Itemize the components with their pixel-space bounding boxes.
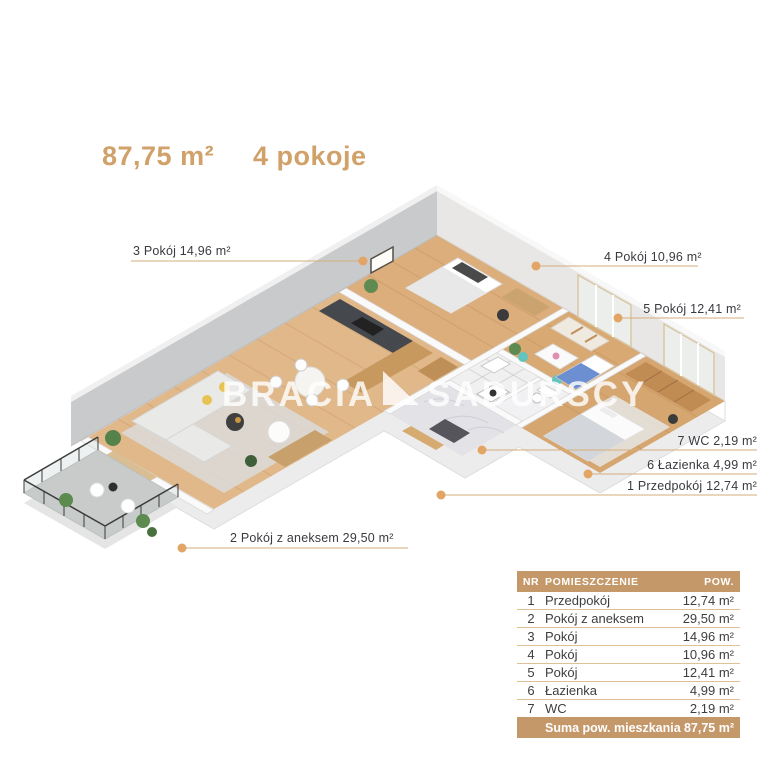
plant (245, 455, 257, 467)
plant (509, 343, 521, 355)
brand-watermark: BRACIA SADURSCY (222, 371, 647, 414)
table-row: 1 Przedpokój 12,74 m² (517, 592, 740, 610)
row-area: 12,41 m² (664, 665, 740, 680)
balcony-table (109, 483, 118, 492)
row-room: WC (545, 701, 664, 716)
leader-dot-room5 (614, 314, 623, 323)
plant (147, 527, 157, 537)
legend-footer: Suma pow. mieszkania 87,75 m² (517, 717, 740, 738)
plant (59, 493, 73, 507)
desk-chair (497, 309, 509, 321)
row-nr: 3 (517, 629, 545, 644)
watermark-right: SADURSCY (427, 375, 647, 414)
row-nr: 1 (517, 593, 545, 608)
row-room: Pokój z aneksem (545, 611, 664, 626)
coffee-table (226, 413, 244, 431)
label-bathroom: 6 Łazienka 4,99 m² (647, 458, 757, 472)
row-area: 10,96 m² (664, 647, 740, 662)
watermark-left: BRACIA (222, 375, 376, 414)
header-nr: NR (517, 576, 545, 588)
plant (105, 430, 121, 446)
label-room4: 4 Pokój 10,96 m² (604, 250, 702, 264)
dining-chair (295, 359, 307, 371)
row-area: 2,19 m² (664, 701, 740, 716)
header-area: POW. (664, 576, 740, 588)
kids-chair (518, 352, 528, 362)
rooms-legend-table: NR POMIESZCZENIE POW. 1 Przedpokój 12,74… (517, 571, 740, 738)
leader-dot-room4 (532, 262, 541, 271)
cake (553, 353, 560, 360)
row-nr: 6 (517, 683, 545, 698)
label-wc: 7 WC 2,19 m² (678, 434, 758, 448)
chair (668, 414, 678, 424)
leader-dot-hallway (437, 491, 446, 500)
table-row: 3 Pokój 14,96 m² (517, 628, 740, 646)
row-room: Pokój (545, 629, 664, 644)
table-row: 5 Pokój 12,41 m² (517, 664, 740, 682)
footer-label: Suma pow. mieszkania (517, 721, 684, 735)
floorplan-page: 87,75 m² 4 pokoje (0, 0, 775, 781)
row-nr: 2 (517, 611, 545, 626)
table-row: 4 Pokój 10,96 m² (517, 646, 740, 664)
leader-dot-bathroom (584, 470, 593, 479)
row-room: Łazienka (545, 683, 664, 698)
row-area: 29,50 m² (664, 611, 740, 626)
row-nr: 7 (517, 701, 545, 716)
row-nr: 4 (517, 647, 545, 662)
label-hallway: 1 Przedpokój 12,74 m² (627, 479, 757, 493)
row-area: 4,99 m² (664, 683, 740, 698)
header-room: POMIESZCZENIE (545, 576, 664, 588)
leader-dot-room2 (178, 544, 187, 553)
row-room: Przedpokój (545, 593, 664, 608)
leader-dot-room3 (359, 257, 368, 266)
plant (364, 279, 378, 293)
table-row: 7 WC 2,19 m² (517, 700, 740, 717)
yellow-pillow (202, 395, 212, 405)
label-room2: 2 Pokój z aneksem 29,50 m² (230, 531, 394, 545)
row-room: Pokój (545, 665, 664, 680)
legend-header: NR POMIESZCZENIE POW. (517, 571, 740, 592)
armchair (268, 421, 290, 443)
label-room3: 3 Pokój 14,96 m² (133, 244, 231, 258)
row-room: Pokój (545, 647, 664, 662)
row-nr: 5 (517, 665, 545, 680)
row-area: 12,74 m² (664, 593, 740, 608)
balcony-chair (90, 483, 104, 497)
label-room5: 5 Pokój 12,41 m² (643, 302, 741, 316)
footer-value: 87,75 m² (684, 721, 740, 735)
row-area: 14,96 m² (664, 629, 740, 644)
leader-dot-wc (478, 446, 487, 455)
balcony-chair (121, 499, 135, 513)
plant (136, 514, 150, 528)
table-row: 2 Pokój z aneksem 29,50 m² (517, 610, 740, 628)
table-row: 6 Łazienka 4,99 m² (517, 682, 740, 700)
